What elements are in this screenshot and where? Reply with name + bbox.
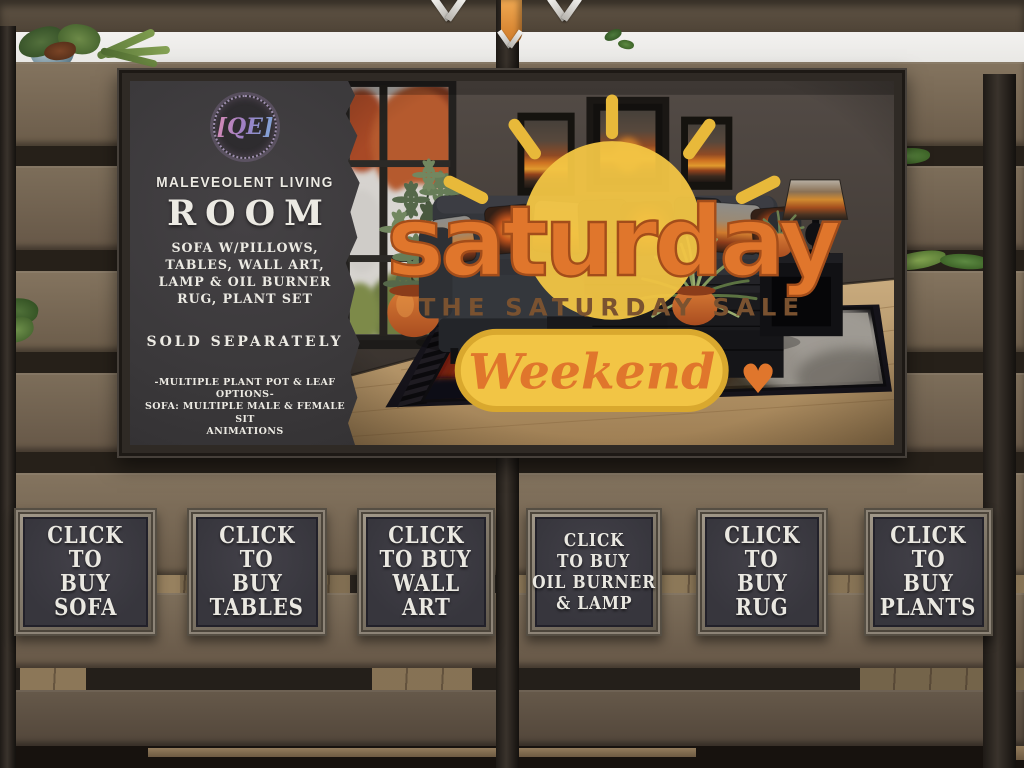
sign-text: CLICK	[724, 524, 800, 548]
sign-text: TO	[240, 548, 274, 572]
viewport-3d-scene: saturday THE SATURDAY SALE Weekend ♥ [QE…	[0, 0, 1024, 768]
sign-text: BUY	[60, 572, 111, 596]
sign-text: CLICK	[388, 524, 464, 548]
hanging-tool-icon	[552, 0, 582, 22]
includes-line: SOFA W/PILLOWS,	[171, 241, 318, 256]
buy-sign-wall-art-panel[interactable]: CLICK TO BUY WALL ART	[366, 517, 486, 627]
sign-text: WALL	[392, 572, 460, 596]
sign-text: BUY	[903, 572, 954, 596]
sign-text: ART	[402, 596, 451, 620]
vendor-poster: saturday THE SATURDAY SALE Weekend ♥ [QE…	[117, 68, 907, 458]
badge-subtitle: THE SATURDAY SALE	[419, 293, 806, 322]
buy-sign-plants[interactable]: CLICK TO BUY PLANTS	[864, 508, 993, 636]
buy-sign-rug[interactable]: CLICK TO BUY RUG	[696, 508, 828, 636]
qe-brand-logo: [QE]	[213, 95, 277, 159]
poster-info-panel: [QE] MALEVEOLENT LIVING ROOM SOFA W/PILL…	[130, 81, 362, 445]
sign-text: CLICK	[47, 524, 123, 548]
sign-text: BUY	[232, 572, 283, 596]
buy-sign-tables-panel[interactable]: CLICK TO BUY TABLES	[196, 517, 318, 627]
sign-text: CLICK	[890, 524, 966, 548]
sign-text: SOFA	[54, 596, 117, 620]
sign-text: & LAMP	[556, 593, 632, 614]
poster-title-line1: MALEVEOLENT LIVING	[144, 175, 345, 191]
poster-title-line2: ROOM	[138, 193, 352, 234]
sign-text: CLICK	[564, 530, 625, 551]
note-line: -MULTIPLE PLANT POT & LEAF OPTIONS-	[155, 377, 336, 400]
hanging-tool-icon	[436, 0, 466, 22]
sign-text: BUY	[737, 572, 788, 596]
buy-sign-wall-art[interactable]: CLICK TO BUY WALL ART	[357, 508, 495, 636]
includes-line: TABLES, WALL ART,	[165, 258, 324, 273]
sign-text: TO	[69, 548, 103, 572]
buy-sign-plants-panel[interactable]: CLICK TO BUY PLANTS	[873, 517, 984, 627]
badge-title: saturday	[386, 185, 840, 298]
sign-text: CLICK	[219, 524, 295, 548]
saturday-sale-badge: saturday THE SATURDAY SALE Weekend ♥	[336, 89, 888, 445]
sign-text: OIL BURNER	[532, 572, 656, 593]
poster-notes: -MULTIPLE PLANT POT & LEAF OPTIONS- SOFA…	[138, 377, 352, 439]
fence-post-left	[0, 26, 16, 768]
fence-post-right	[983, 74, 1016, 768]
buy-sign-oil-burner-lamp[interactable]: CLICK TO BUY OIL BURNER & LAMP	[526, 508, 662, 636]
qe-logo-text: [QE]	[217, 114, 274, 140]
sign-text: RUG	[735, 596, 788, 620]
note-line: ANIMATIONS	[138, 426, 352, 438]
sign-text: TO	[912, 548, 946, 572]
buy-sign-tables[interactable]: CLICK TO BUY TABLES	[187, 508, 327, 636]
sign-text: PLANTS	[880, 596, 976, 620]
sign-text: TO BUY	[380, 548, 472, 572]
room-photo: saturday THE SATURDAY SALE Weekend ♥	[342, 81, 894, 445]
buy-sign-oil-burner-lamp-panel[interactable]: CLICK TO BUY OIL BURNER & LAMP	[535, 517, 653, 627]
buy-sign-sofa-panel[interactable]: CLICK TO BUY SOFA	[23, 517, 148, 627]
poster-includes-list: SOFA W/PILLOWS, TABLES, WALL ART, LAMP &…	[141, 241, 349, 309]
sign-text: TO	[745, 548, 779, 572]
includes-line: LAMP & OIL BURNER	[159, 275, 332, 290]
includes-line: RUG, PLANT SET	[177, 292, 313, 307]
note-line: SOFA: MULTIPLE MALE & FEMALE SIT	[138, 401, 352, 426]
sold-separately-label: SOLD SEPARATELY	[138, 334, 352, 350]
hanging-tool-icon	[501, 29, 524, 49]
buy-sign-rug-panel[interactable]: CLICK TO BUY RUG	[705, 517, 819, 627]
buy-sign-sofa[interactable]: CLICK TO BUY SOFA	[14, 508, 157, 636]
heart-icon: ♥	[740, 355, 776, 403]
sign-text: TO BUY	[557, 551, 630, 572]
badge-banner: Weekend	[468, 344, 715, 401]
sign-text: TABLES	[210, 596, 304, 620]
